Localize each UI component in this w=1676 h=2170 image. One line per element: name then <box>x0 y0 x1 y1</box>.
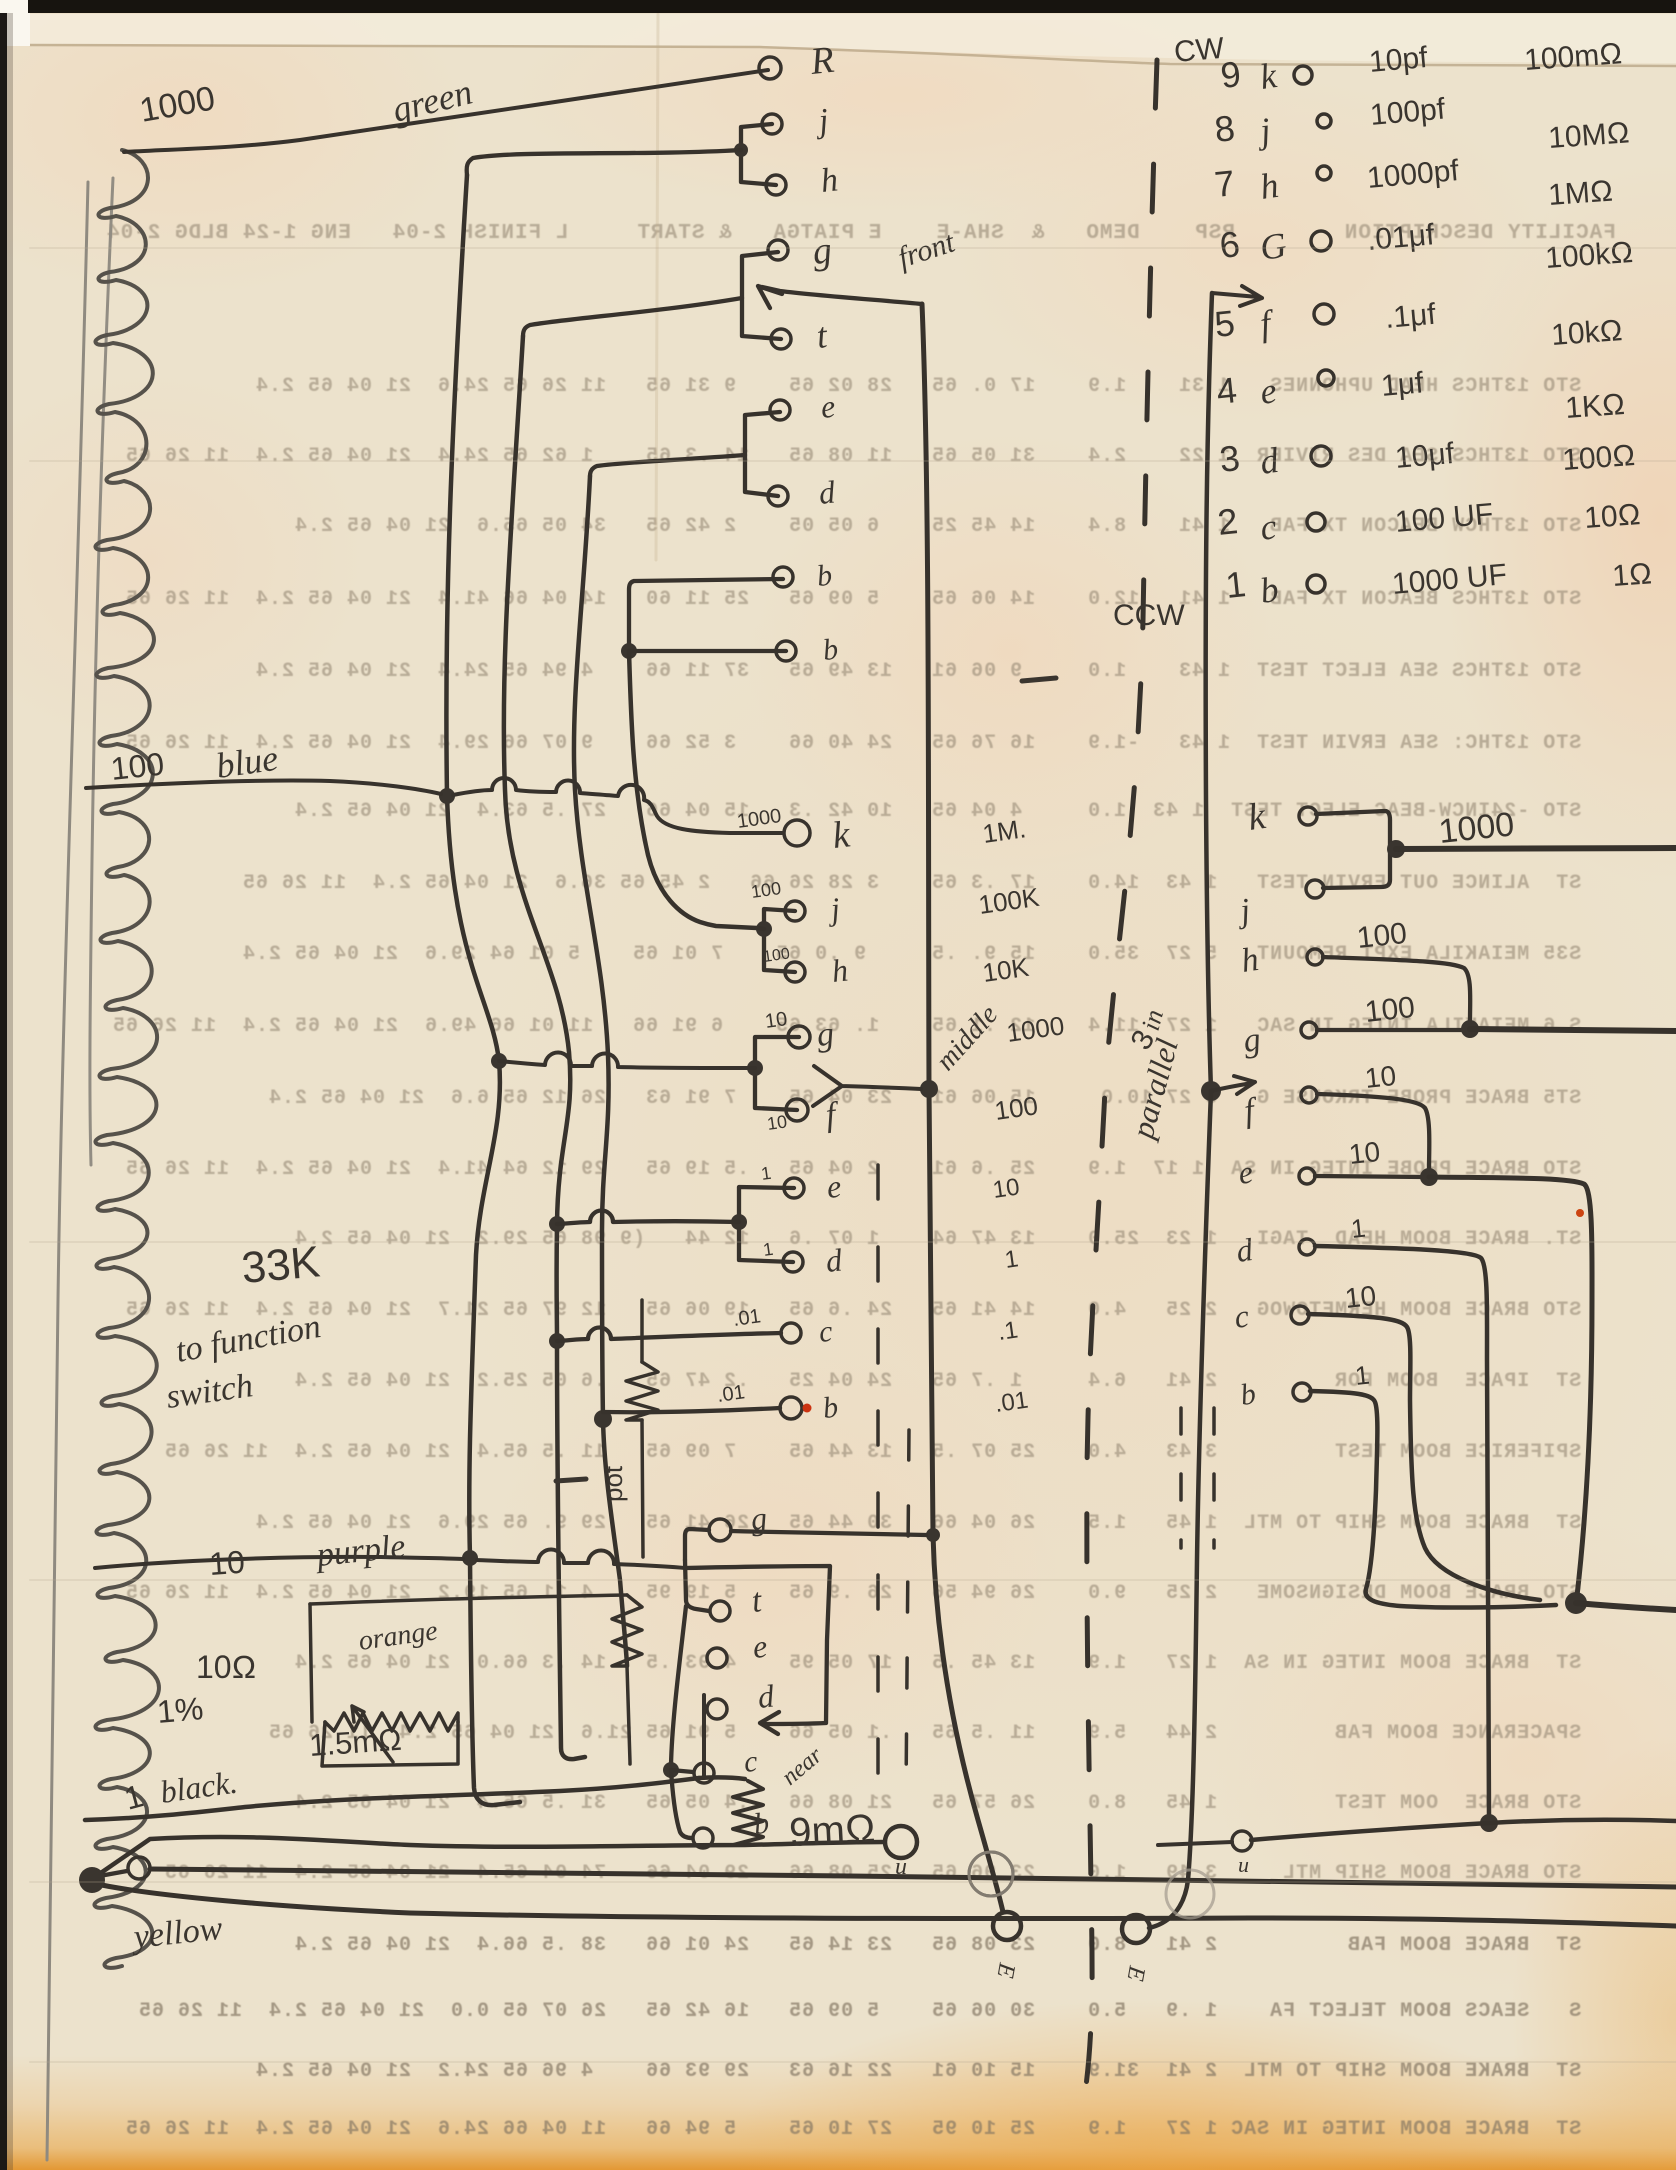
svg-text:blue: blue <box>214 738 281 786</box>
svg-text:3: 3 <box>1218 437 1242 480</box>
svg-text:f: f <box>1242 1091 1261 1130</box>
svg-text:1: 1 <box>1353 1360 1371 1391</box>
svg-text:j: j <box>1254 110 1273 152</box>
svg-text:d: d <box>1234 1231 1256 1269</box>
svg-text:u: u <box>1238 1852 1249 1877</box>
svg-text:t: t <box>815 315 830 356</box>
svg-text:d: d <box>756 1677 777 1715</box>
svg-text:6: 6 <box>1218 223 1242 266</box>
svg-text:100: 100 <box>1355 917 1408 955</box>
svg-text:k: k <box>1245 795 1269 839</box>
svg-text:1MΩ: 1MΩ <box>1547 175 1614 212</box>
svg-text:pot: pot <box>598 1465 628 1502</box>
svg-text:h: h <box>1258 165 1281 207</box>
svg-text:f: f <box>1258 302 1278 344</box>
svg-text:9mΩ: 9mΩ <box>788 1807 876 1855</box>
svg-text:1%: 1% <box>155 1690 204 1730</box>
svg-text:orange: orange <box>357 1615 440 1657</box>
svg-text:E: E <box>1121 1963 1149 1983</box>
svg-text:10K: 10K <box>981 952 1032 988</box>
svg-text:100Ω: 100Ω <box>1561 439 1636 477</box>
svg-text:100pf: 100pf <box>1369 92 1447 131</box>
svg-text:1: 1 <box>760 1163 773 1184</box>
svg-text:purple: purple <box>313 1528 407 1574</box>
svg-text:front: front <box>894 225 959 274</box>
svg-text:b: b <box>1238 1377 1257 1412</box>
svg-text:4: 4 <box>1215 369 1239 412</box>
svg-text:CCW: CCW <box>1113 599 1185 632</box>
svg-text:1000pf: 1000pf <box>1366 154 1461 195</box>
svg-text:b: b <box>815 559 833 593</box>
svg-text:g: g <box>1241 1021 1263 1060</box>
svg-text:green: green <box>388 71 476 129</box>
svg-text:1: 1 <box>1349 1213 1367 1244</box>
svg-text:1Ω: 1Ω <box>1611 557 1653 593</box>
svg-text:10MΩ: 10MΩ <box>1547 116 1631 155</box>
svg-text:.01: .01 <box>716 1381 747 1407</box>
svg-text:10: 10 <box>208 1544 246 1582</box>
svg-text:near: near <box>777 1742 828 1791</box>
svg-text:e: e <box>1258 370 1279 412</box>
svg-text:.01: .01 <box>732 1305 763 1331</box>
svg-text:d: d <box>824 1241 845 1279</box>
svg-text:g: g <box>749 1499 769 1536</box>
svg-text:d: d <box>817 473 838 511</box>
svg-text:100: 100 <box>762 945 791 966</box>
svg-text:10: 10 <box>1347 1136 1381 1170</box>
svg-text:5: 5 <box>1213 302 1237 345</box>
svg-text:2: 2 <box>1216 500 1240 543</box>
svg-text:b: b <box>821 633 839 667</box>
svg-text:R: R <box>808 39 836 83</box>
svg-text:1: 1 <box>1003 1245 1020 1274</box>
svg-text:1KΩ: 1KΩ <box>1564 388 1626 425</box>
svg-text:9: 9 <box>1219 53 1243 96</box>
svg-text:100: 100 <box>1363 991 1416 1029</box>
svg-text:c: c <box>1258 506 1279 548</box>
svg-text:.1: .1 <box>996 1316 1020 1346</box>
svg-text:1000: 1000 <box>736 805 783 833</box>
svg-text:100mΩ: 100mΩ <box>1523 37 1623 77</box>
svg-text:1000: 1000 <box>1005 1010 1066 1048</box>
svg-text:j: j <box>1234 892 1252 931</box>
svg-text:10Ω: 10Ω <box>1583 498 1642 535</box>
svg-text:b: b <box>752 1807 770 1841</box>
svg-text:b: b <box>1258 569 1281 611</box>
svg-text:10pf: 10pf <box>1368 41 1430 79</box>
svg-text:g: g <box>811 229 834 273</box>
svg-text:1: 1 <box>1224 563 1248 606</box>
svg-text:10: 10 <box>1363 1060 1397 1094</box>
svg-text:b: b <box>821 1391 839 1425</box>
svg-text:e: e <box>819 388 837 425</box>
svg-text:e: e <box>751 1628 769 1665</box>
svg-text:1: 1 <box>120 1777 147 1816</box>
svg-text:100kΩ: 100kΩ <box>1544 236 1634 275</box>
svg-text:33K: 33K <box>240 1237 322 1293</box>
svg-text:k: k <box>1258 55 1280 97</box>
svg-text:black.: black. <box>158 1764 240 1810</box>
svg-text:CW: CW <box>1173 32 1226 69</box>
svg-text:G: G <box>1258 225 1289 268</box>
svg-text:1000: 1000 <box>137 79 218 130</box>
svg-text:c: c <box>742 1745 759 1779</box>
svg-text:h: h <box>830 951 850 988</box>
svg-text:10Ω: 10Ω <box>196 1649 256 1685</box>
svg-text:10μf: 10μf <box>1394 437 1456 475</box>
svg-text:8: 8 <box>1213 107 1237 150</box>
svg-text:to function: to function <box>173 1308 324 1370</box>
svg-text:e: e <box>1236 1153 1255 1191</box>
svg-text:c: c <box>1232 1297 1251 1335</box>
svg-text:.1μf: .1μf <box>1384 298 1438 335</box>
svg-text:middle: middle <box>930 999 1004 1076</box>
svg-text:100: 100 <box>750 878 783 902</box>
svg-text:E: E <box>991 1960 1019 1980</box>
svg-text:100K: 100K <box>977 882 1042 920</box>
svg-text:100: 100 <box>109 746 166 787</box>
svg-text:10: 10 <box>1343 1280 1377 1314</box>
svg-text:1μf: 1μf <box>1380 366 1426 403</box>
svg-text:7: 7 <box>1213 162 1237 205</box>
svg-text:j: j <box>825 890 842 927</box>
svg-text:1.5mΩ: 1.5mΩ <box>308 1722 403 1763</box>
svg-text:1M.: 1M. <box>981 813 1028 849</box>
svg-text:switch: switch <box>164 1367 255 1416</box>
svg-text:f: f <box>824 1096 842 1134</box>
svg-text:u: u <box>895 1854 907 1880</box>
svg-text:j: j <box>813 102 830 140</box>
svg-text:.01μf: .01μf <box>1366 218 1437 257</box>
svg-text:1000: 1000 <box>1437 805 1516 851</box>
svg-text:c: c <box>817 1315 834 1349</box>
svg-text:h: h <box>1239 941 1261 980</box>
svg-text:10: 10 <box>764 1008 789 1033</box>
svg-text:1000 UF: 1000 UF <box>1391 558 1509 601</box>
svg-text:10kΩ: 10kΩ <box>1550 314 1624 352</box>
svg-text:100 UF: 100 UF <box>1394 498 1495 539</box>
svg-text:.01: .01 <box>993 1387 1030 1418</box>
svg-text:e: e <box>825 1168 843 1205</box>
svg-text:h: h <box>819 161 840 200</box>
svg-text:10: 10 <box>991 1173 1021 1203</box>
svg-text:k: k <box>831 813 853 857</box>
svg-text:10: 10 <box>766 1111 789 1134</box>
svg-text:100: 100 <box>993 1090 1040 1126</box>
svg-text:t: t <box>750 1582 765 1620</box>
svg-text:g: g <box>815 1015 836 1054</box>
